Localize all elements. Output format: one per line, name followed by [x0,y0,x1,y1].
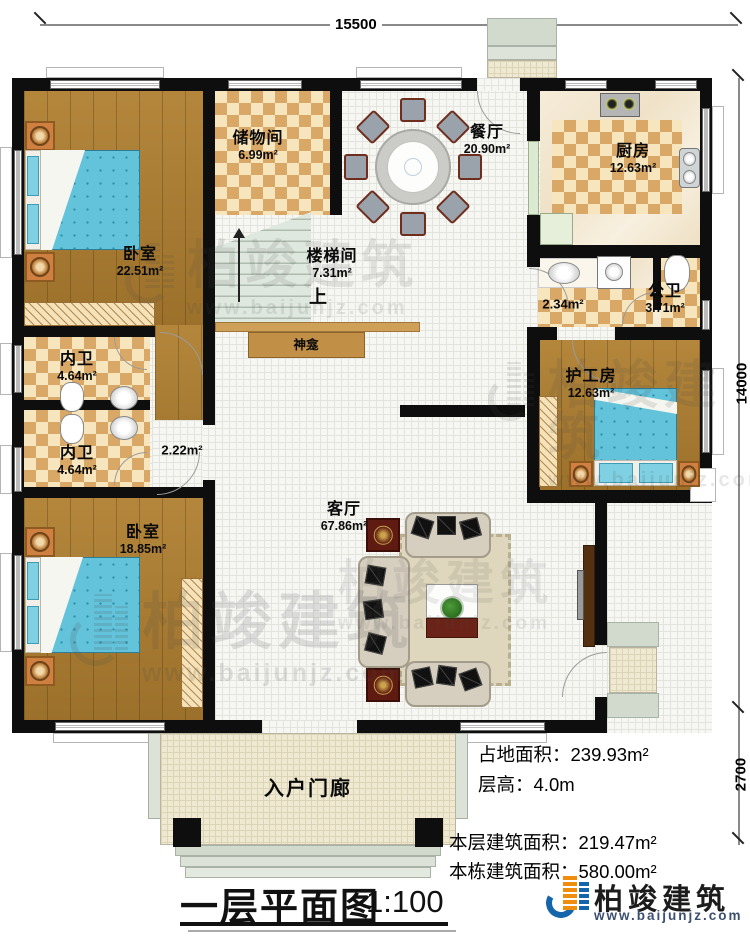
nightstand [25,527,55,557]
porch-step [175,845,441,856]
shrine-label: 神龛 [293,338,318,352]
stat-floor-height: 层高：4.0m [478,771,575,797]
wall-hall-stub [400,405,525,417]
room-label-storage: 储物间 6.99m² [232,130,283,162]
window [565,80,607,89]
title-underline-thin [188,930,456,932]
stat-label: 本层建筑面积： [449,832,579,853]
wardrobe [24,302,155,326]
room-area: 3.71m² [645,301,685,315]
back-porch-step [487,46,557,60]
room-area: 20.90m² [464,142,511,156]
room-name: 内卫 [57,351,97,369]
window [702,370,710,453]
sink [548,262,580,284]
toilet [60,414,84,444]
fridge [540,213,573,245]
nightstand [25,121,55,151]
room-name: 楼梯间 [306,248,357,266]
dim-tick [34,12,47,25]
room-name: 储物间 [232,130,283,148]
stat-value: 219.47m² [579,832,657,853]
side-table [366,518,400,552]
east-porch-floor [609,647,657,693]
room-area: 7.31m² [306,266,357,280]
room-label-bedroom2: 卧室 18.85m² [120,524,167,556]
room-label-caregiver: 护工房 12.63m² [565,368,616,400]
bed-pillow [27,204,39,244]
room-name: 客厅 [321,501,368,519]
room-label-bath2: 内卫 4.64m² [57,445,97,477]
stove-burner [606,98,618,110]
sofa-pillow [364,564,386,586]
tv [577,570,584,620]
window [360,80,462,89]
bed-pillow [27,606,39,644]
room-label-living: 客厅 67.86m² [321,501,368,533]
dining-chair [458,154,482,180]
room-name: 厨房 [610,143,657,161]
stat-label: 占地面积： [478,744,571,765]
wardrobe [181,578,203,708]
room-label-kitchen: 厨房 12.63m² [610,143,657,175]
nightstand [25,656,55,686]
room-name: 公卫 [645,283,685,301]
stat-floor-area: 本层建筑面积：219.47m² [449,829,657,855]
east-porch-step [607,693,659,718]
stat-value: 4.0m [534,774,575,795]
porch-label: 入户门廊 [264,778,352,800]
window [14,345,22,393]
sofa-pillow [436,665,457,686]
window [655,80,697,89]
window [14,555,22,650]
stove-burner [623,98,635,110]
dining-chair [400,212,426,236]
stat-value: 239.93m² [571,744,649,765]
page-title-scale: 1:100 [366,884,444,920]
back-porch-floor [487,60,557,78]
wall-storage-east [330,78,342,215]
sink [110,386,138,410]
dining-table-hub [404,158,422,176]
sofa-pillow [411,666,434,689]
east-porch-step [607,622,659,647]
window [55,722,165,731]
wall-bedroom2-east [203,480,215,720]
stairs-up-arrowhead [233,228,245,238]
porch-pillar [415,818,443,847]
room-area: 67.86m² [321,519,368,533]
wall-center-vertical [203,78,215,425]
dim-side-label: 14000 [734,344,750,424]
room-name: 卧室 [120,524,167,542]
side-table [366,668,400,702]
kitchen-sliding-door [528,141,539,215]
dim-tick [730,12,743,25]
window-sill [0,445,12,494]
room-name: 内卫 [57,445,97,463]
room-label-public-bath: 公卫 3.71m² [645,283,685,315]
wardrobe [539,396,558,487]
window-sill [46,67,164,78]
dim-porch-label: 2700 [733,740,750,810]
window-sill [712,106,724,194]
nightstand [25,252,55,282]
window [702,300,710,330]
dim-line-right [738,78,740,845]
room-area: 12.63m² [565,386,616,400]
bed-pillow [639,463,673,483]
room-area: 12.63m² [610,161,657,175]
hall-area-label: 2.34m² [542,298,583,313]
stat-label: 层高： [478,774,534,795]
room-area: 18.85m² [120,542,167,556]
room-label-bedroom1: 卧室 22.51m² [117,246,164,278]
window [460,722,545,731]
kitchen-sink-bowl [683,170,696,184]
window-sill [712,368,724,455]
wall-caregiver-south [527,490,712,503]
room-name: 卧室 [117,246,164,264]
room-area: 4.64m² [57,369,97,383]
stairs-up-label: 上 [309,287,327,307]
wall-kitchen-west-b [527,215,540,267]
dining-chair [344,154,368,180]
room-area: 4.64m² [57,463,97,477]
stairs-up-arrow [238,236,240,302]
dim-line-top [40,24,738,26]
shrine-shelf [215,322,420,332]
wall-southeast [595,497,607,733]
plant [442,598,462,618]
title-underline [180,922,448,926]
logo-tower-orange [563,874,577,910]
room-label-dining: 餐厅 20.90m² [464,124,511,156]
tv-cabinet [583,545,595,647]
room-label-stairwell: 楼梯间 7.31m² [306,248,357,280]
window [14,150,22,255]
sink [110,416,138,440]
window [702,108,710,192]
wall-kitchen-west-a [527,78,540,141]
stat-land-area: 占地面积：239.93m² [478,741,649,767]
back-door-gap [477,78,520,91]
wall-bath-south-a [527,327,557,340]
room-name: 餐厅 [464,124,511,142]
nightstand [678,461,700,487]
bed-pillow [27,156,39,196]
porch-pillar [173,818,201,847]
room-label-bath1: 内卫 4.64m² [57,351,97,383]
window-sill [0,553,12,652]
washing-machine-drum [605,263,623,281]
kitchen-sink-bowl [683,152,696,166]
window [14,447,22,492]
bed-pillow [27,562,39,600]
vestibule-area-label: 2.22m² [161,444,202,459]
coffee-table-lower [426,618,478,638]
window [50,80,160,89]
logo-tower-blue [579,882,589,910]
dining-chair [400,98,426,122]
room-area: 22.51m² [117,264,164,278]
dim-top-label: 15500 [330,16,382,33]
brand-logo-icon [546,872,592,926]
porch-step [180,856,436,867]
floorplan-page: 15500 14000 2700 [0,0,750,937]
window-sill [0,343,12,395]
back-porch-step [487,18,557,46]
toilet [60,382,84,412]
window-sill [356,67,462,78]
sofa-pillow [437,516,456,535]
wall-bedroom1-bath1 [12,325,155,337]
room-area: 6.99m² [232,148,283,162]
window [228,80,302,89]
wall-bath-south-b [615,327,712,340]
brand-site: www.baijunjz.com [594,908,743,923]
sofa-pillow [363,599,384,620]
window-sill [0,147,12,258]
nightstand [569,461,593,487]
front-door-gap [262,720,357,733]
bed-pillow [599,463,633,483]
room-name: 护工房 [565,368,616,386]
